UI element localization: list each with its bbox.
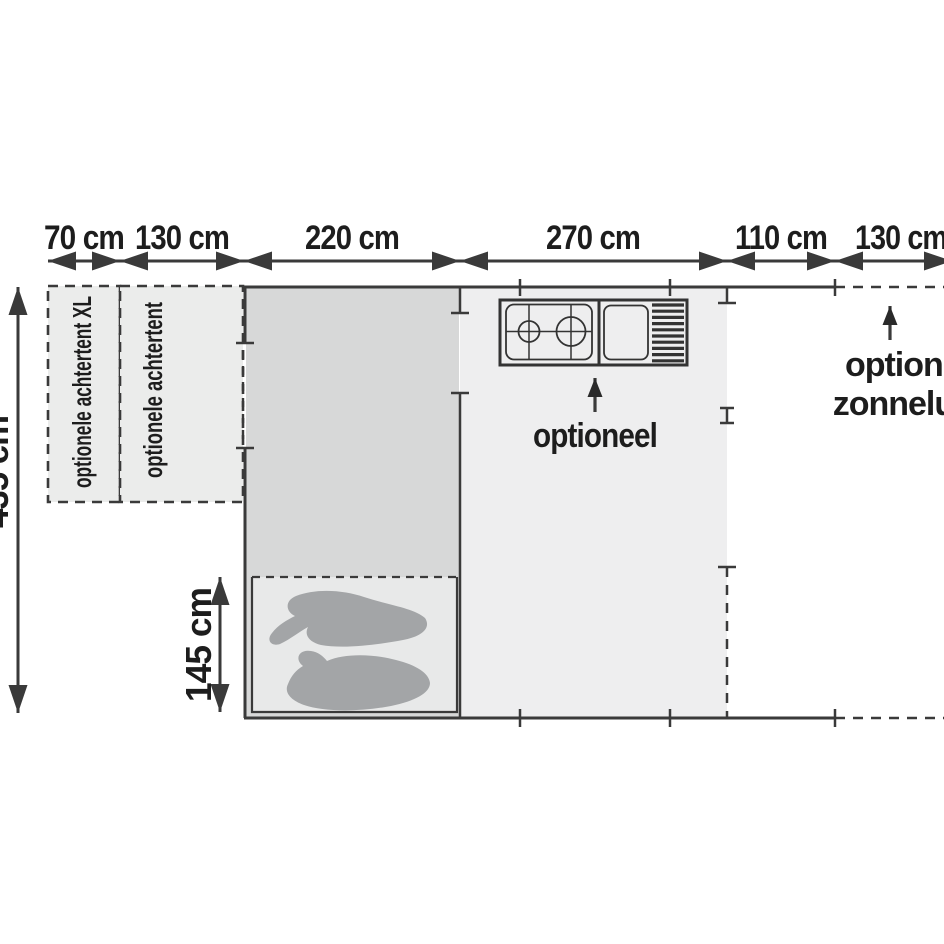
dim-label-270cm: 270 cm (546, 219, 640, 257)
dim-label-bed-145cm: 145 cm (178, 588, 219, 702)
kitchen-optional-label: optioneel (533, 417, 657, 455)
dim-label-130cm: 130 cm (135, 219, 229, 257)
dim-label-130cm-right: 130 cm (855, 219, 944, 257)
canopy-label-line2: zonneluifel (833, 385, 944, 423)
rear-tent-xl-label: optionele achtertent XL (67, 296, 97, 488)
bed-area (252, 577, 457, 712)
trailer-tent-floorplan: 70 cm 130 cm 220 cm 270 cm 110 cm 130 cm… (0, 0, 944, 944)
dim-label-70cm: 70 cm (44, 219, 124, 257)
canopy-label-line1: optionele (845, 346, 944, 384)
rear-tent-label: optionele achtertent (138, 302, 168, 478)
dim-label-left-depth: 435 cm (0, 416, 16, 528)
dim-label-110cm: 110 cm (735, 219, 827, 257)
dim-label-220cm: 220 cm (305, 219, 399, 257)
